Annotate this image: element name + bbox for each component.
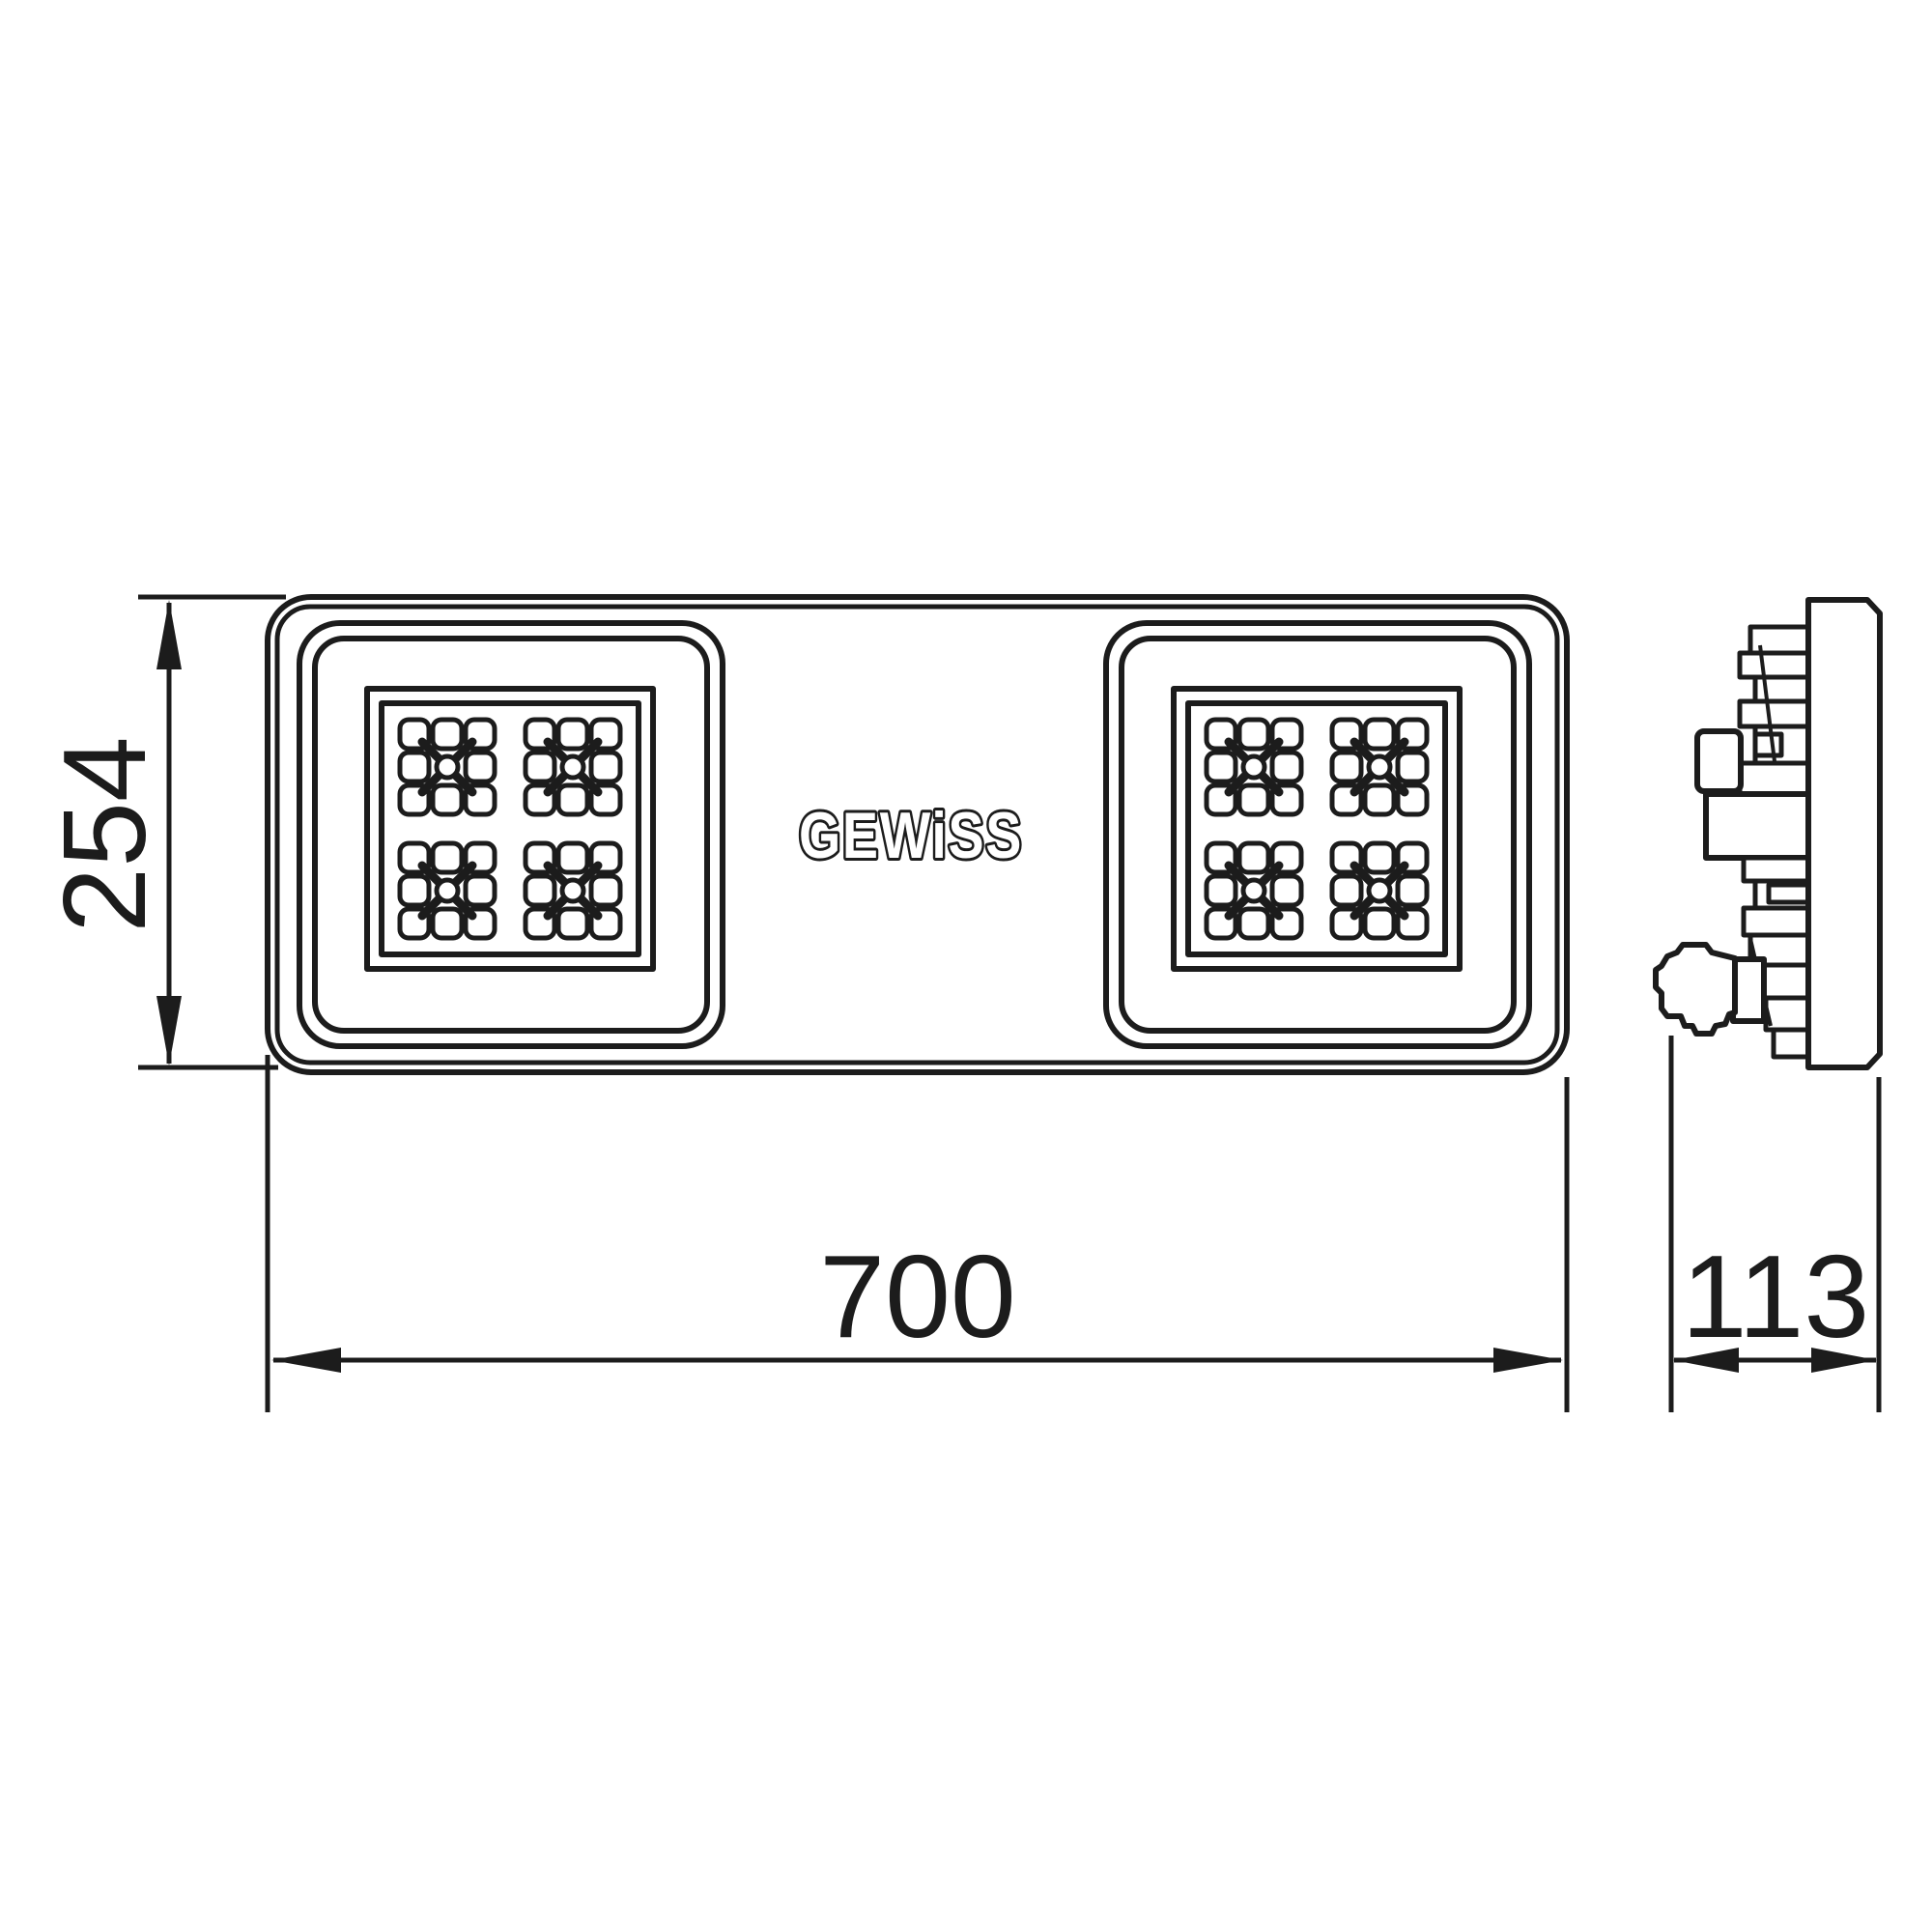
led-module-left bbox=[299, 623, 723, 1046]
heatsink-fin-notch bbox=[1769, 885, 1809, 902]
dimension-width-label: 700 bbox=[819, 1231, 1016, 1362]
heatsink-fin-notch bbox=[1755, 734, 1781, 755]
heatsink-fin bbox=[1774, 1030, 1809, 1057]
dimension-height-label: 254 bbox=[39, 736, 170, 933]
heatsink-fin bbox=[1740, 763, 1809, 794]
dimension-depth-label: 113 bbox=[1682, 1231, 1870, 1362]
heatsink-fin bbox=[1740, 701, 1809, 726]
drawing-canvas: GEWiSS bbox=[0, 0, 1932, 1932]
side-knob bbox=[1697, 731, 1741, 791]
led-module-right bbox=[1106, 623, 1529, 1046]
front-plate bbox=[1808, 600, 1880, 1067]
heatsink-fin bbox=[1744, 858, 1809, 881]
floodlight-technical-drawing: GEWiSS bbox=[0, 0, 1932, 1932]
heatsink-fin bbox=[1744, 908, 1809, 935]
side-mid-block bbox=[1706, 794, 1809, 858]
drawing-root: GEWiSS bbox=[0, 0, 1932, 1932]
heatsink-fin bbox=[1740, 653, 1809, 677]
front-view: GEWiSS bbox=[268, 597, 1567, 1072]
gewiss-logo-text: GEWiSS bbox=[799, 799, 1023, 872]
